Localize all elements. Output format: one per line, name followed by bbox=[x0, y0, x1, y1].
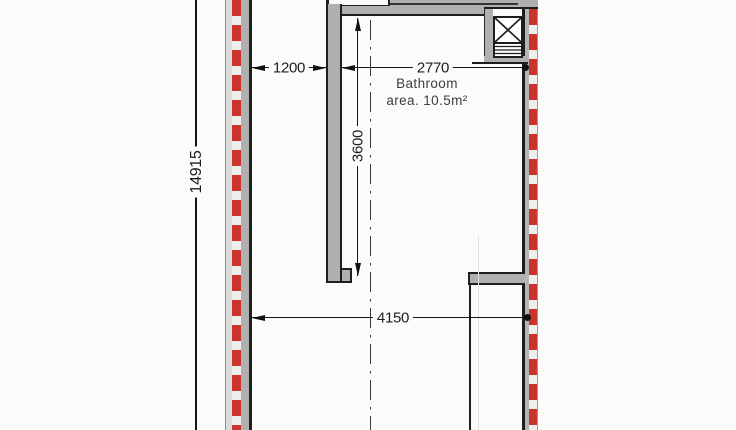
insulation-hatch-right bbox=[529, 0, 537, 430]
dim-dot-icon bbox=[524, 314, 531, 321]
top-wall-inner-line bbox=[390, 3, 518, 5]
insulation-hatch-left bbox=[232, 0, 241, 430]
opening-jamb-line bbox=[469, 285, 471, 430]
dim-arrow-icon bbox=[252, 315, 265, 321]
room-area: area. 10.5m² bbox=[386, 93, 467, 110]
shaft-bottom-line-ext bbox=[472, 62, 484, 64]
dim-label-2770: 2770 bbox=[413, 60, 453, 75]
floor-plan-canvas: 1200 2770 3600 4150 14915 Bathroom area.… bbox=[0, 0, 736, 430]
partition-foot bbox=[342, 268, 352, 283]
dim-arrow-icon bbox=[313, 65, 326, 71]
right-wall-stub bbox=[468, 272, 525, 285]
dim-line-14915 bbox=[195, 0, 197, 430]
dim-dot-icon bbox=[522, 64, 529, 71]
centerline-axis bbox=[370, 20, 371, 430]
wall-outer-line bbox=[537, 0, 538, 430]
dim-arrow-icon bbox=[355, 18, 361, 31]
wall-core bbox=[241, 0, 249, 430]
dim-label-1200: 1200 bbox=[269, 61, 309, 76]
room-label: Bathroom area. 10.5m² bbox=[386, 76, 467, 110]
room-name: Bathroom bbox=[386, 76, 467, 93]
dim-arrow-icon bbox=[342, 65, 355, 71]
shaft-cross-icon bbox=[493, 16, 523, 58]
dim-label-3600: 3600 bbox=[351, 126, 366, 166]
louver-grille-icon bbox=[494, 43, 522, 57]
faint-guideline bbox=[478, 235, 479, 430]
dim-label-14915: 14915 bbox=[189, 147, 205, 198]
partition-body bbox=[326, 4, 342, 283]
top-wall-by-shaft bbox=[484, 0, 538, 9]
dim-label-4150: 4150 bbox=[373, 311, 413, 326]
dim-arrow-icon bbox=[355, 263, 361, 276]
dim-arrow-icon bbox=[252, 65, 265, 71]
